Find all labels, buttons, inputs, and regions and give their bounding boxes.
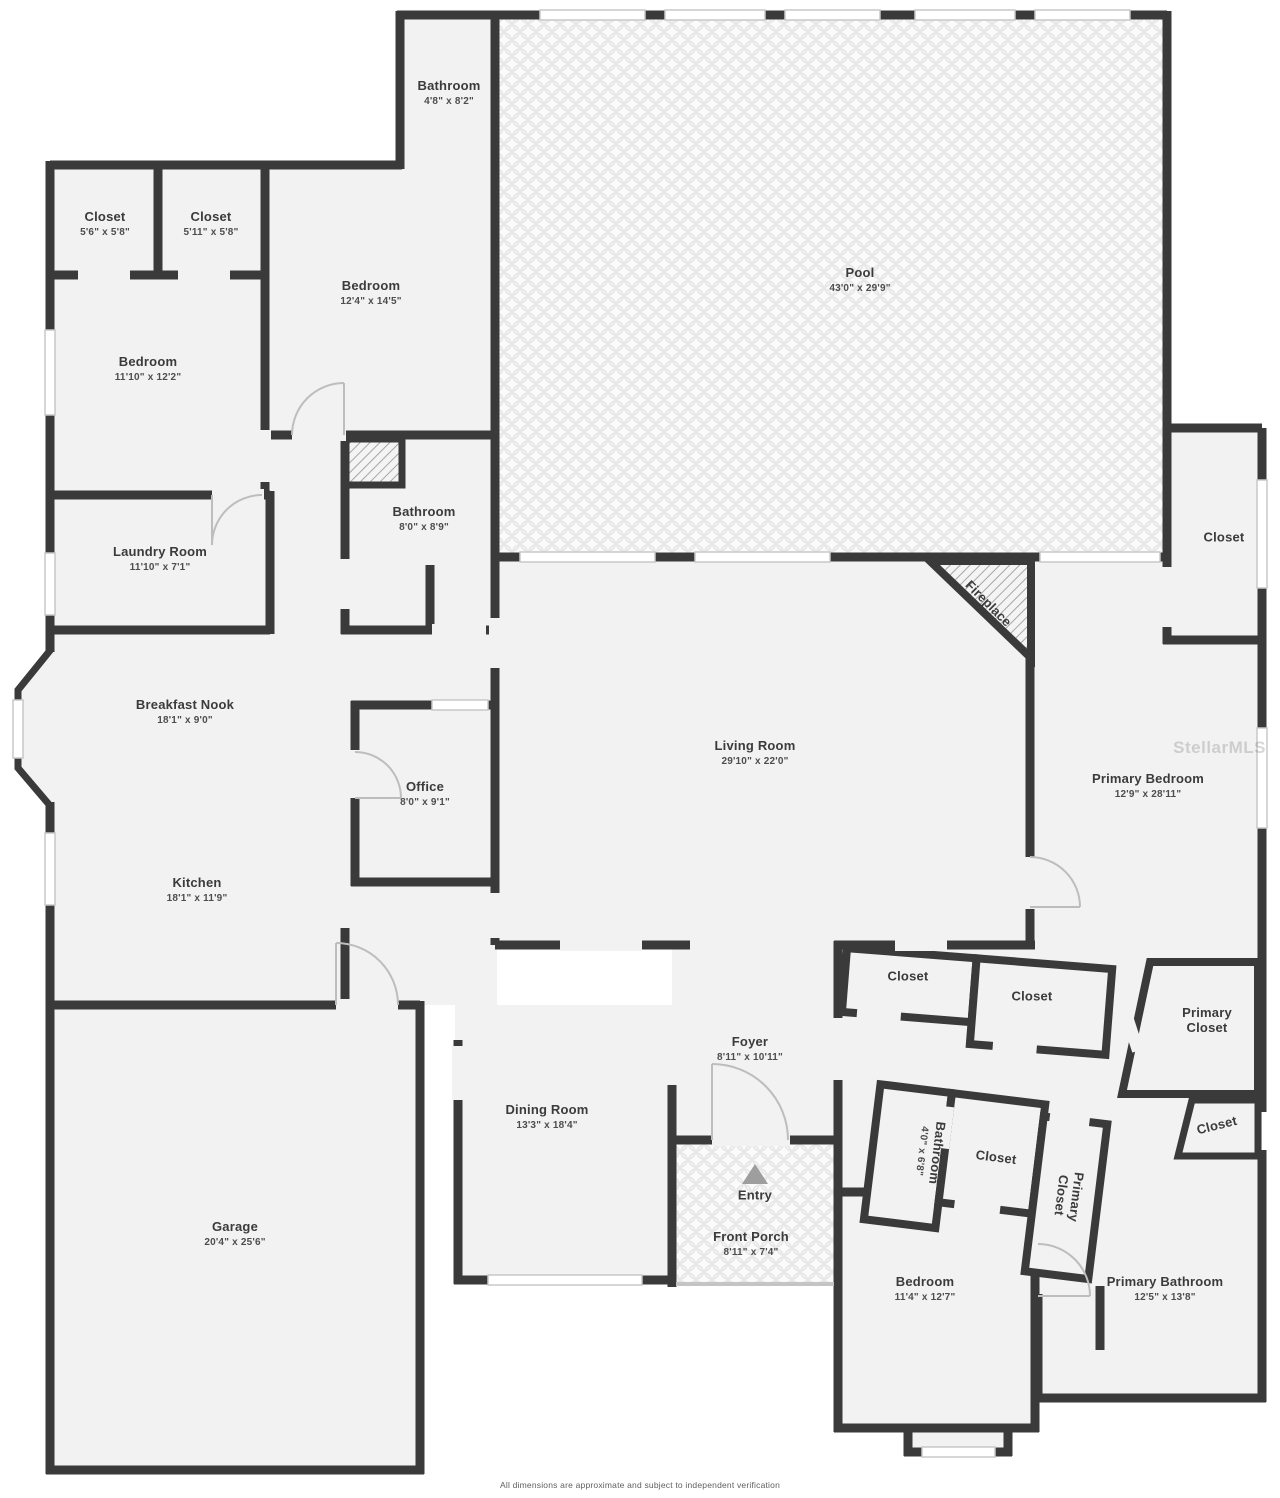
porch-surface (672, 1140, 838, 1285)
watermark: StellarMLS (1173, 738, 1266, 758)
closet-c-shape (1178, 1100, 1258, 1156)
floorplan-page: Bathroom4'8" x 8'2"Closet5'6" x 5'8"Clos… (0, 0, 1280, 1498)
primary-closet-1-shape (1122, 962, 1258, 1094)
disclaimer-text: All dimensions are approximate and subje… (0, 1480, 1280, 1490)
chase-shape (345, 439, 402, 485)
floorplan-drawing (0, 0, 1280, 1498)
pool-surface (497, 13, 1167, 557)
